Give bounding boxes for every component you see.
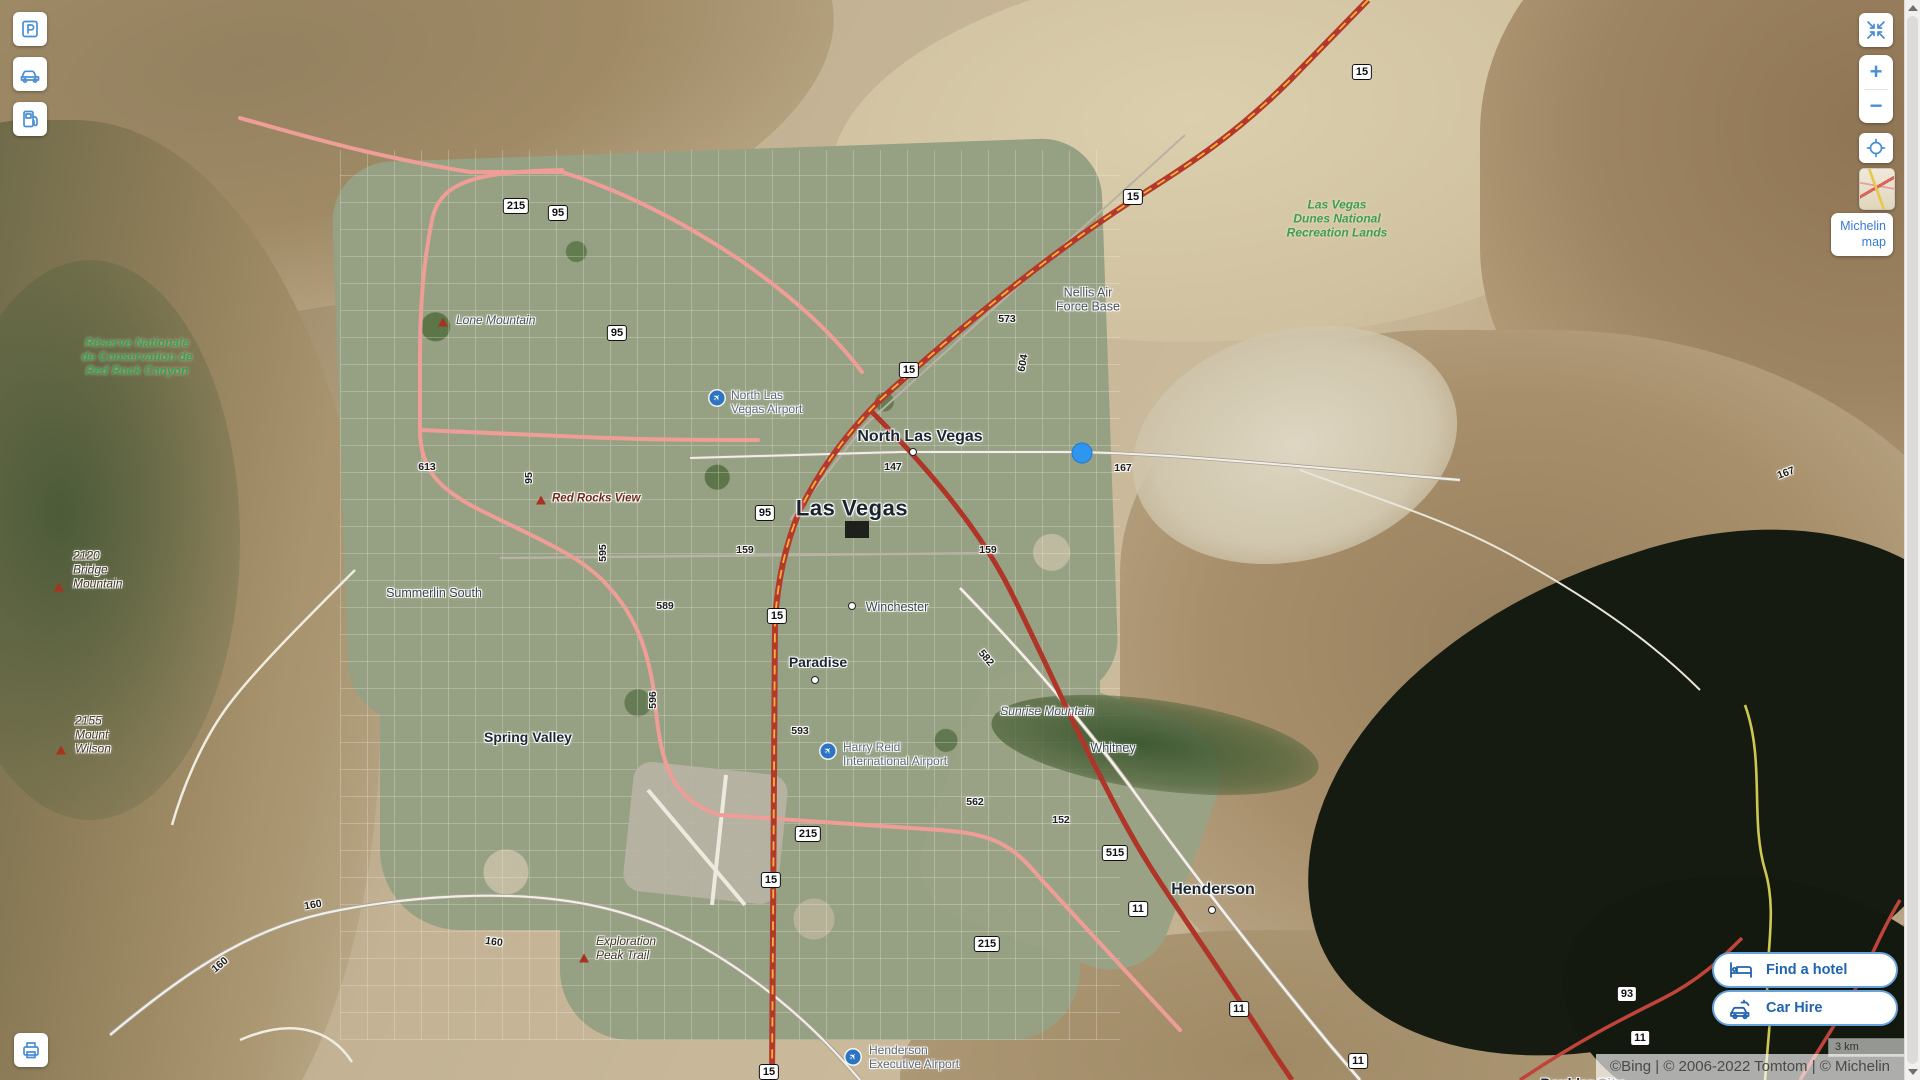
zoom-control: + −	[1859, 55, 1893, 123]
route-number-95: 95	[523, 472, 535, 484]
locate-icon	[1865, 137, 1887, 159]
map-label-airport: Henderson Executive Airport	[869, 1044, 959, 1072]
route-shield-15: 15	[899, 362, 919, 378]
route-shield-95: 95	[607, 325, 627, 341]
map-label-peak: Exploration Peak Trail	[596, 935, 656, 963]
route-number-595: 595	[597, 544, 609, 562]
route-shield-515: 515	[1102, 845, 1128, 861]
peak-icon	[536, 496, 546, 505]
route-shield-11: 11	[1630, 1030, 1650, 1046]
map-label-area: Las Vegas Dunes National Recreation Land…	[1287, 198, 1388, 239]
map-label-area: Sunrise Mountain	[1000, 705, 1093, 719]
city-marker	[1208, 906, 1216, 914]
route-shield-215: 215	[795, 826, 821, 842]
airport-icon: ✈	[821, 744, 836, 759]
car-icon	[18, 62, 42, 86]
route-shield-215: 215	[974, 936, 1000, 952]
map-label-peak: Lone Mountain	[456, 314, 535, 328]
map-label-area: Nellis Air Force Base	[1056, 286, 1120, 315]
traffic-button[interactable]	[13, 57, 47, 91]
car-key-icon	[1728, 996, 1754, 1020]
locate-button[interactable]	[1859, 133, 1893, 163]
route-number-613: 613	[418, 461, 436, 473]
route-shield-11: 11	[1128, 901, 1148, 917]
scrollbar-thumb[interactable]	[1907, 16, 1918, 1064]
route-shield-11: 11	[1229, 1001, 1249, 1017]
route-number-593: 593	[791, 725, 809, 737]
airport-icon: ✈	[710, 391, 725, 406]
peak-icon	[438, 318, 448, 327]
city-marker	[811, 676, 819, 684]
map-label-peak: 2120 Bridge Mountain	[73, 549, 122, 590]
route-number-573: 573	[998, 313, 1016, 325]
route-number-562: 562	[966, 796, 984, 808]
map-label-area: Réserve Nationale de Conservation de Red…	[81, 336, 192, 377]
map-label-airport: North Las Vegas Airport	[731, 389, 802, 417]
roads-layer	[0, 0, 1920, 1080]
map-label-airport: Harry Reid International Airport	[843, 741, 947, 769]
map-label-paradise: Paradise	[789, 654, 847, 670]
route-number-167: 167	[1114, 462, 1132, 474]
fuel-button[interactable]	[13, 102, 47, 136]
route-number-589: 589	[656, 600, 674, 612]
airport-icon: ✈	[846, 1050, 861, 1065]
michelin-map-button[interactable]: Michelin map	[1831, 213, 1893, 256]
map-label-north-las-vegas: North Las Vegas	[857, 428, 982, 446]
fuel-pump-icon	[19, 108, 41, 130]
scrollbar[interactable]	[1904, 0, 1920, 1080]
map-label-peak: Red Rocks View	[552, 492, 640, 505]
route-number-159: 159	[979, 544, 997, 556]
route-shield-15: 15	[761, 872, 781, 888]
route-shield-15: 15	[1352, 64, 1372, 80]
exit-fullscreen-button[interactable]	[1859, 13, 1893, 47]
route-shield-95: 95	[755, 505, 775, 521]
route-number-147: 147	[884, 461, 902, 473]
route-shield-95: 95	[548, 205, 568, 221]
map-label-peak: 2155 Mount Wilson	[75, 714, 111, 755]
route-number-160: 160	[484, 935, 503, 949]
car-hire-label: Car Hire	[1766, 1000, 1822, 1016]
zoom-out-button[interactable]: −	[1859, 90, 1893, 124]
scrollbar-up-arrow[interactable]	[1908, 5, 1918, 11]
map-label-las-vegas: Las Vegas	[796, 495, 908, 520]
bed-icon	[1728, 959, 1754, 981]
route-shield-93: 93	[1617, 986, 1637, 1002]
map-style-thumbnail-button[interactable]	[1859, 168, 1895, 210]
peak-icon	[579, 954, 589, 963]
selected-location-marker	[1072, 443, 1093, 464]
find-hotel-button[interactable]: Find a hotel	[1712, 952, 1898, 988]
map-label-henderson: Henderson	[1171, 881, 1255, 899]
city-marker	[909, 448, 917, 456]
map-label-spring-valley: Spring Valley	[484, 729, 572, 745]
route-shield-15: 15	[1123, 189, 1143, 205]
map-attribution: ©Bing | © 2006-2022 Tomtom | © Michelin	[1596, 1054, 1904, 1080]
route-shield-215: 215	[503, 198, 529, 214]
print-button[interactable]	[14, 1033, 48, 1067]
peak-icon	[56, 746, 66, 755]
route-shield-15: 15	[759, 1064, 779, 1080]
scrollbar-down-arrow[interactable]	[1908, 1069, 1918, 1075]
route-number-596: 596	[647, 691, 659, 709]
car-hire-button[interactable]: Car Hire	[1712, 990, 1898, 1026]
route-shield-11: 11	[1348, 1053, 1368, 1069]
map-viewport[interactable]: Las VegasNorth Las VegasHendersonParadis…	[0, 0, 1920, 1080]
map-label-winchester: Winchester	[866, 600, 929, 614]
parking-icon	[19, 18, 41, 40]
parking-button[interactable]	[13, 12, 47, 46]
city-marker	[848, 602, 856, 610]
zoom-in-button[interactable]: +	[1859, 55, 1893, 89]
peak-icon	[54, 583, 64, 592]
map-label-whitney: Whitney	[1090, 741, 1135, 755]
route-number-159: 159	[736, 544, 754, 556]
printer-icon	[20, 1039, 42, 1061]
exit-fullscreen-icon	[1865, 19, 1887, 41]
find-hotel-label: Find a hotel	[1766, 962, 1847, 978]
route-shield-15: 15	[767, 608, 787, 624]
route-number-152: 152	[1052, 814, 1070, 826]
map-label-summerlin-south: Summerlin South	[386, 586, 482, 600]
